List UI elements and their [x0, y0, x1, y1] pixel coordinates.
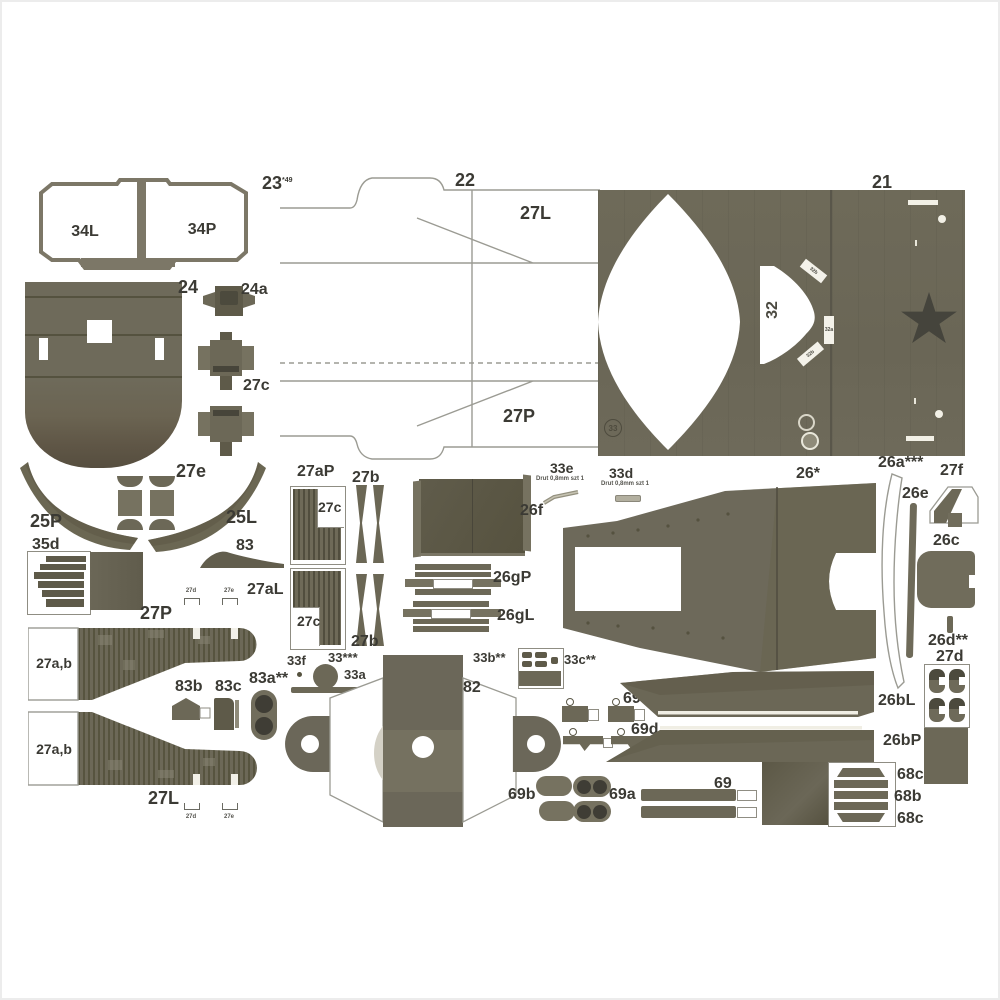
part-26star [558, 478, 878, 678]
part-label-26d: 26d** [928, 633, 968, 649]
part-27c1-flap-l [198, 346, 210, 370]
part-27aP [290, 486, 346, 565]
part-69-tab-2 [737, 807, 757, 818]
part-label-25P: 25P [30, 512, 62, 530]
t2 [535, 652, 547, 658]
g5 [415, 589, 491, 595]
part-21-lens-cutout [598, 190, 748, 456]
part-26f [413, 477, 531, 559]
part-33bc-solid [519, 671, 561, 686]
part-27d-block [924, 728, 968, 784]
part-26f-fold [472, 479, 473, 553]
part-label-27P-big: 27P [140, 604, 172, 622]
part-27e1-fan-top [117, 476, 143, 487]
part-24 [25, 282, 182, 468]
part-27c1-flap-r [242, 346, 254, 370]
part-label-26gP: 26gP [493, 570, 531, 586]
part-22-lines [280, 170, 600, 465]
part-32-tag-mid: 32a [824, 316, 834, 344]
part-24-cutout-right [155, 338, 164, 360]
f2 [593, 780, 607, 794]
part-26c-notch [969, 575, 976, 588]
part-27e1-seat [118, 490, 142, 516]
part-label-34L: 34L [55, 224, 115, 240]
marker-27d-top: 27d [183, 588, 199, 594]
c2 [949, 669, 965, 693]
part-label-27e: 27e [176, 462, 206, 480]
part-label-83c: 83c [215, 679, 242, 695]
t1 [522, 652, 532, 658]
part-68-grille [828, 762, 896, 827]
part-label-27L-top: 27L [520, 204, 551, 222]
part-label-83: 83 [236, 538, 254, 554]
part-label-69b: 69b [508, 787, 536, 803]
part-35d-s3 [34, 572, 84, 579]
part-33bc-box [518, 648, 564, 689]
c3 [929, 698, 945, 722]
part-label-26star: 26* [796, 466, 820, 482]
f3 [577, 805, 591, 819]
part-21-tick-2 [914, 398, 916, 404]
d2 [562, 706, 588, 722]
part-26f-bottom-edge [419, 553, 525, 556]
part-label-83b: 83b [175, 679, 203, 695]
part-69-bar-2 [641, 806, 736, 818]
part-21-slot-top [908, 200, 938, 205]
h5 [413, 626, 489, 632]
part-83c [214, 698, 234, 730]
part-27c1-tab-b [220, 376, 232, 390]
part-23-center-bar [137, 182, 146, 266]
part-35d-s4 [38, 581, 84, 588]
part-label-27c-bot: 27c [297, 614, 320, 628]
part-label-26e: 26e [902, 486, 929, 502]
part-21-slot-bottom [906, 436, 934, 441]
part-24-line-3 [25, 376, 182, 378]
part-label-27c-top: 27c [318, 500, 341, 514]
part-26gP [411, 564, 497, 597]
part-label-27d-box: 27d [936, 649, 964, 665]
part-label-27c: 27c [243, 378, 270, 394]
part-26d [947, 616, 953, 633]
part-69-bar-1 [641, 789, 736, 801]
part-83a [251, 690, 277, 740]
part-label-26a: 26a*** [878, 455, 923, 471]
part-label-34P: 34P [172, 222, 232, 238]
part-label-27ab-bot: 27a,b [31, 742, 77, 756]
part-35d-s2 [40, 564, 86, 570]
part-27c-unit-2 [198, 396, 254, 456]
d3 [588, 709, 599, 721]
g1 [415, 564, 491, 570]
marker-27d-bot: 27d [183, 814, 199, 820]
marker-bracket-4 [222, 803, 238, 810]
part-83 [170, 548, 290, 574]
part-27e2-seat [150, 490, 174, 516]
part-83b [170, 696, 214, 722]
f4 [593, 805, 607, 819]
c1 [929, 669, 945, 693]
part-27c1-slot [213, 366, 239, 372]
part-label-35d: 35d [32, 537, 60, 553]
part-label-68c-b: 68c [897, 811, 924, 827]
part-27c2-slot [213, 410, 239, 416]
part-21-33-mark: 33 [604, 419, 622, 437]
part-27e2-fan-bot [149, 519, 175, 530]
part-27aL [290, 568, 346, 650]
part-23-bottom-strip [81, 258, 175, 267]
part-label-26f: 26f [520, 503, 543, 519]
part-label-68c-a: 68c [897, 767, 924, 783]
part-27b-top [354, 483, 386, 565]
part-83a-hole-1 [255, 695, 273, 713]
s1 [837, 768, 885, 777]
part-27e2-fan-top [149, 476, 175, 487]
part-27e-group [117, 476, 177, 532]
part-21-hole-1 [938, 215, 946, 223]
c4n [959, 706, 965, 714]
part-26b-group [600, 665, 880, 770]
part-27c2-flap-r [242, 412, 254, 436]
part-24a-inner [220, 291, 238, 305]
part-21: 32 32b 32a 32b 33 [598, 190, 965, 456]
part-label-33b: 33b** [473, 651, 506, 664]
e2 [563, 736, 603, 751]
part-27c2-tab-b [220, 442, 232, 456]
part-21-hole-2 [935, 410, 943, 418]
part-label-27P-top: 27P [503, 407, 535, 425]
t3 [522, 661, 532, 667]
s3 [834, 791, 888, 799]
part-label-22: 22 [455, 171, 475, 189]
part-69b-2 [539, 801, 575, 821]
part-69-tab-1 [737, 790, 757, 801]
marker-27e-top: 27e [221, 588, 237, 594]
part-35d-s1 [46, 556, 86, 562]
part-label-26bP: 26bP [883, 733, 921, 749]
part-label-25L: 25L [226, 508, 257, 526]
part-21-ring-1 [798, 414, 815, 431]
h4 [413, 619, 489, 624]
part-label-33c: 33c** [564, 653, 596, 666]
g4 [433, 579, 473, 589]
s4 [834, 802, 888, 810]
part-27d-box [924, 664, 970, 728]
part-label-21: 21 [872, 173, 892, 191]
part-label-82: 82 [463, 680, 481, 696]
part-label-26c: 26c [933, 533, 960, 549]
part-22 [280, 170, 600, 465]
part-24-cutout-left [39, 338, 48, 360]
c4 [949, 698, 965, 722]
marker-bracket-3 [184, 803, 200, 810]
part-label-24: 24 [178, 278, 198, 296]
part-label-69a: 69a [609, 787, 636, 803]
part-69b-1 [536, 776, 572, 796]
c1n [939, 677, 945, 685]
marker-bracket-2 [222, 598, 238, 605]
part-69c-1 [562, 698, 602, 723]
part-label-24a: 24a [241, 282, 268, 298]
part-27f [928, 483, 980, 529]
part-26gL [407, 601, 497, 635]
part-24a-flap-left [203, 292, 215, 308]
f1 [577, 780, 591, 794]
d1 [566, 698, 574, 706]
h3 [431, 609, 471, 619]
g2 [415, 572, 491, 577]
e1 [569, 728, 577, 736]
parts-sheet: 23*49 34L 34P 22 27L 27P 32 [0, 0, 1000, 1000]
part-24-line-1 [25, 296, 182, 298]
part-label-26gL: 26gL [497, 608, 534, 624]
part-21-tick-1 [915, 240, 917, 246]
marker-bracket-1 [184, 598, 200, 605]
t4 [535, 661, 547, 667]
s5 [837, 813, 885, 822]
part-69a-1 [573, 776, 611, 797]
part-label-68b: 68b [894, 789, 922, 805]
part-label-27L-big: 27L [148, 789, 179, 807]
part-label-27aP: 27aP [297, 464, 334, 480]
part-label-27ab-top: 27a,b [31, 656, 77, 670]
part-83a-hole-2 [255, 717, 273, 735]
marker-27e-bot: 27e [221, 814, 237, 820]
t5 [551, 657, 558, 664]
s2 [834, 780, 888, 788]
c3n [939, 706, 945, 714]
h1 [413, 601, 489, 607]
part-69a-2 [573, 801, 611, 822]
part-label-27f: 27f [940, 463, 963, 479]
part-27c1-tab-t [220, 332, 232, 340]
part-68-panel [762, 762, 828, 825]
part-27e1-fan-bot [117, 519, 143, 530]
part-label-33e: 33e [550, 461, 573, 475]
part-26a [878, 472, 910, 692]
part-21-ring-2 [801, 432, 819, 450]
c2n [959, 677, 965, 685]
part-27c2-flap-l [198, 412, 210, 436]
part-label-32: 32 [765, 301, 781, 319]
part-label-27b-top: 27b [352, 470, 380, 486]
part-label-26bL: 26bL [878, 693, 915, 709]
part-26f-flange-l [413, 481, 421, 558]
part-83c-tab [235, 700, 239, 728]
part-26c [917, 551, 975, 608]
part-24-cutout-center [87, 320, 112, 343]
